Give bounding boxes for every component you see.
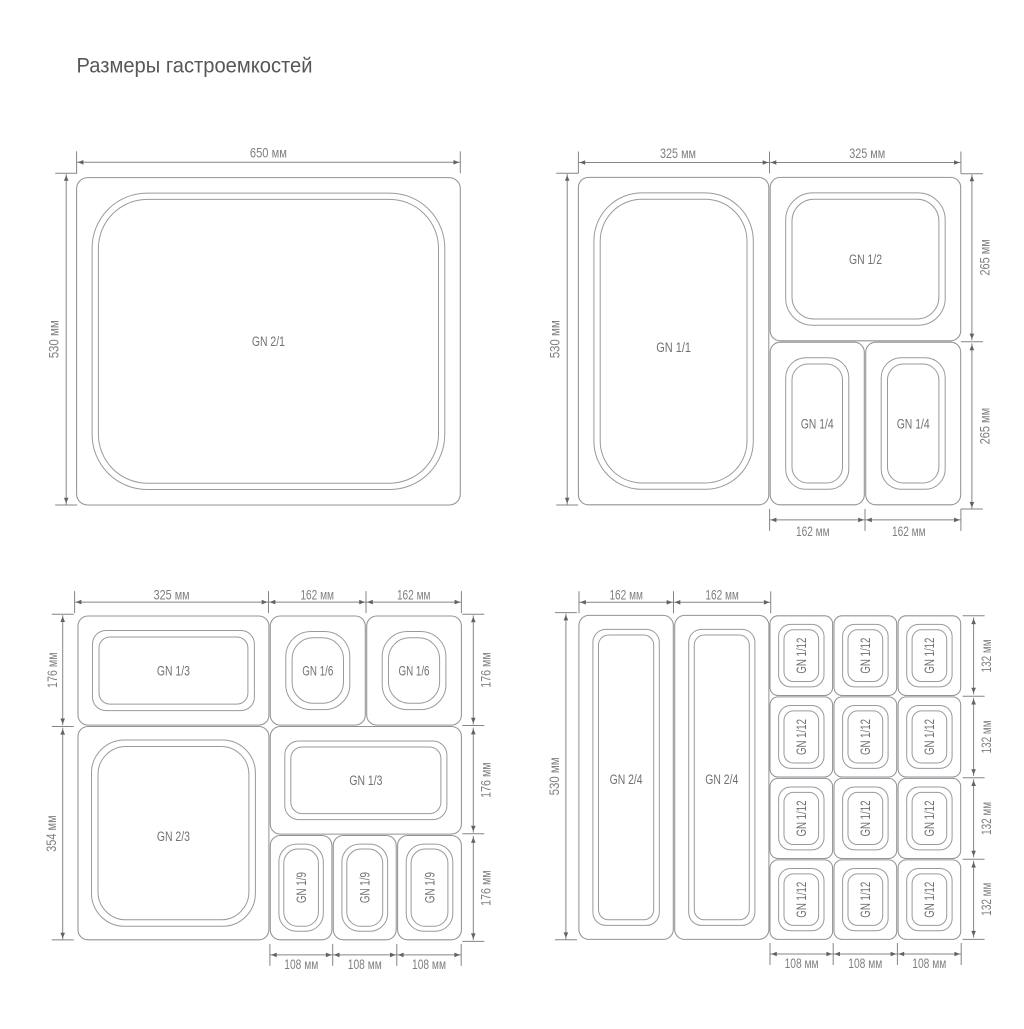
svg-text:354 мм: 354 мм — [44, 815, 59, 852]
svg-text:GN 1/12: GN 1/12 — [922, 638, 937, 674]
svg-text:162 мм: 162 мм — [796, 524, 830, 539]
svg-text:325 мм: 325 мм — [660, 146, 696, 161]
svg-text:GN 1/4: GN 1/4 — [897, 416, 930, 431]
svg-text:176 мм: 176 мм — [478, 870, 493, 906]
svg-text:GN 1/12: GN 1/12 — [922, 719, 937, 755]
svg-text:GN 2/1: GN 2/1 — [252, 334, 285, 349]
svg-text:GN 1/9: GN 1/9 — [422, 872, 437, 903]
svg-text:132 мм: 132 мм — [979, 720, 994, 753]
svg-text:162 мм: 162 мм — [300, 587, 334, 602]
svg-text:GN 1/4: GN 1/4 — [801, 416, 834, 431]
svg-text:GN 1/12: GN 1/12 — [858, 801, 873, 837]
svg-text:132 мм: 132 мм — [979, 802, 994, 835]
svg-text:GN 2/4: GN 2/4 — [705, 772, 738, 787]
svg-text:GN 1/12: GN 1/12 — [794, 801, 809, 837]
svg-text:GN 1/6: GN 1/6 — [302, 663, 333, 678]
svg-text:162 мм: 162 мм — [397, 587, 431, 602]
svg-text:GN 1/12: GN 1/12 — [858, 882, 873, 918]
svg-text:GN 2/4: GN 2/4 — [610, 772, 643, 787]
svg-text:650 мм: 650 мм — [250, 146, 287, 161]
svg-text:GN 1/1: GN 1/1 — [656, 340, 691, 355]
svg-text:325 мм: 325 мм — [154, 587, 190, 602]
svg-text:176 мм: 176 мм — [478, 762, 493, 798]
svg-text:325 мм: 325 мм — [849, 146, 885, 161]
svg-text:GN 1/3: GN 1/3 — [349, 773, 382, 788]
svg-text:GN 1/12: GN 1/12 — [794, 719, 809, 755]
svg-text:108 мм: 108 мм — [284, 957, 318, 972]
svg-text:GN 1/9: GN 1/9 — [358, 872, 373, 903]
svg-text:GN 1/12: GN 1/12 — [858, 638, 873, 674]
svg-text:GN 1/2: GN 1/2 — [849, 252, 882, 267]
svg-text:GN 1/12: GN 1/12 — [794, 638, 809, 674]
svg-text:GN 2/3: GN 2/3 — [157, 829, 190, 844]
svg-text:108 мм: 108 мм — [412, 957, 446, 972]
svg-text:530 мм: 530 мм — [46, 320, 61, 358]
svg-text:132 мм: 132 мм — [979, 883, 994, 916]
svg-text:108 мм: 108 мм — [848, 956, 882, 971]
svg-text:132 мм: 132 мм — [979, 639, 994, 672]
svg-text:GN 1/6: GN 1/6 — [399, 663, 430, 678]
svg-text:Размеры гастроемкостей: Размеры гастроемкостей — [77, 54, 313, 78]
svg-text:530 мм: 530 мм — [547, 320, 562, 358]
svg-text:162 мм: 162 мм — [609, 588, 643, 603]
svg-text:GN 1/3: GN 1/3 — [157, 663, 190, 678]
svg-text:GN 1/12: GN 1/12 — [922, 801, 937, 837]
svg-text:176 мм: 176 мм — [478, 652, 493, 688]
svg-text:162 мм: 162 мм — [892, 524, 926, 539]
svg-text:108 мм: 108 мм — [912, 956, 946, 971]
svg-text:265 мм: 265 мм — [977, 408, 992, 445]
svg-text:530 мм: 530 мм — [547, 757, 562, 795]
svg-text:108 мм: 108 мм — [785, 956, 819, 971]
svg-text:265 мм: 265 мм — [977, 239, 992, 276]
svg-text:108 мм: 108 мм — [348, 957, 382, 972]
svg-text:162 мм: 162 мм — [705, 588, 739, 603]
svg-text:GN 1/12: GN 1/12 — [794, 882, 809, 918]
svg-text:GN 1/12: GN 1/12 — [922, 882, 937, 918]
svg-text:GN 1/9: GN 1/9 — [294, 872, 309, 903]
svg-text:GN 1/12: GN 1/12 — [858, 719, 873, 755]
svg-text:176 мм: 176 мм — [45, 652, 60, 688]
